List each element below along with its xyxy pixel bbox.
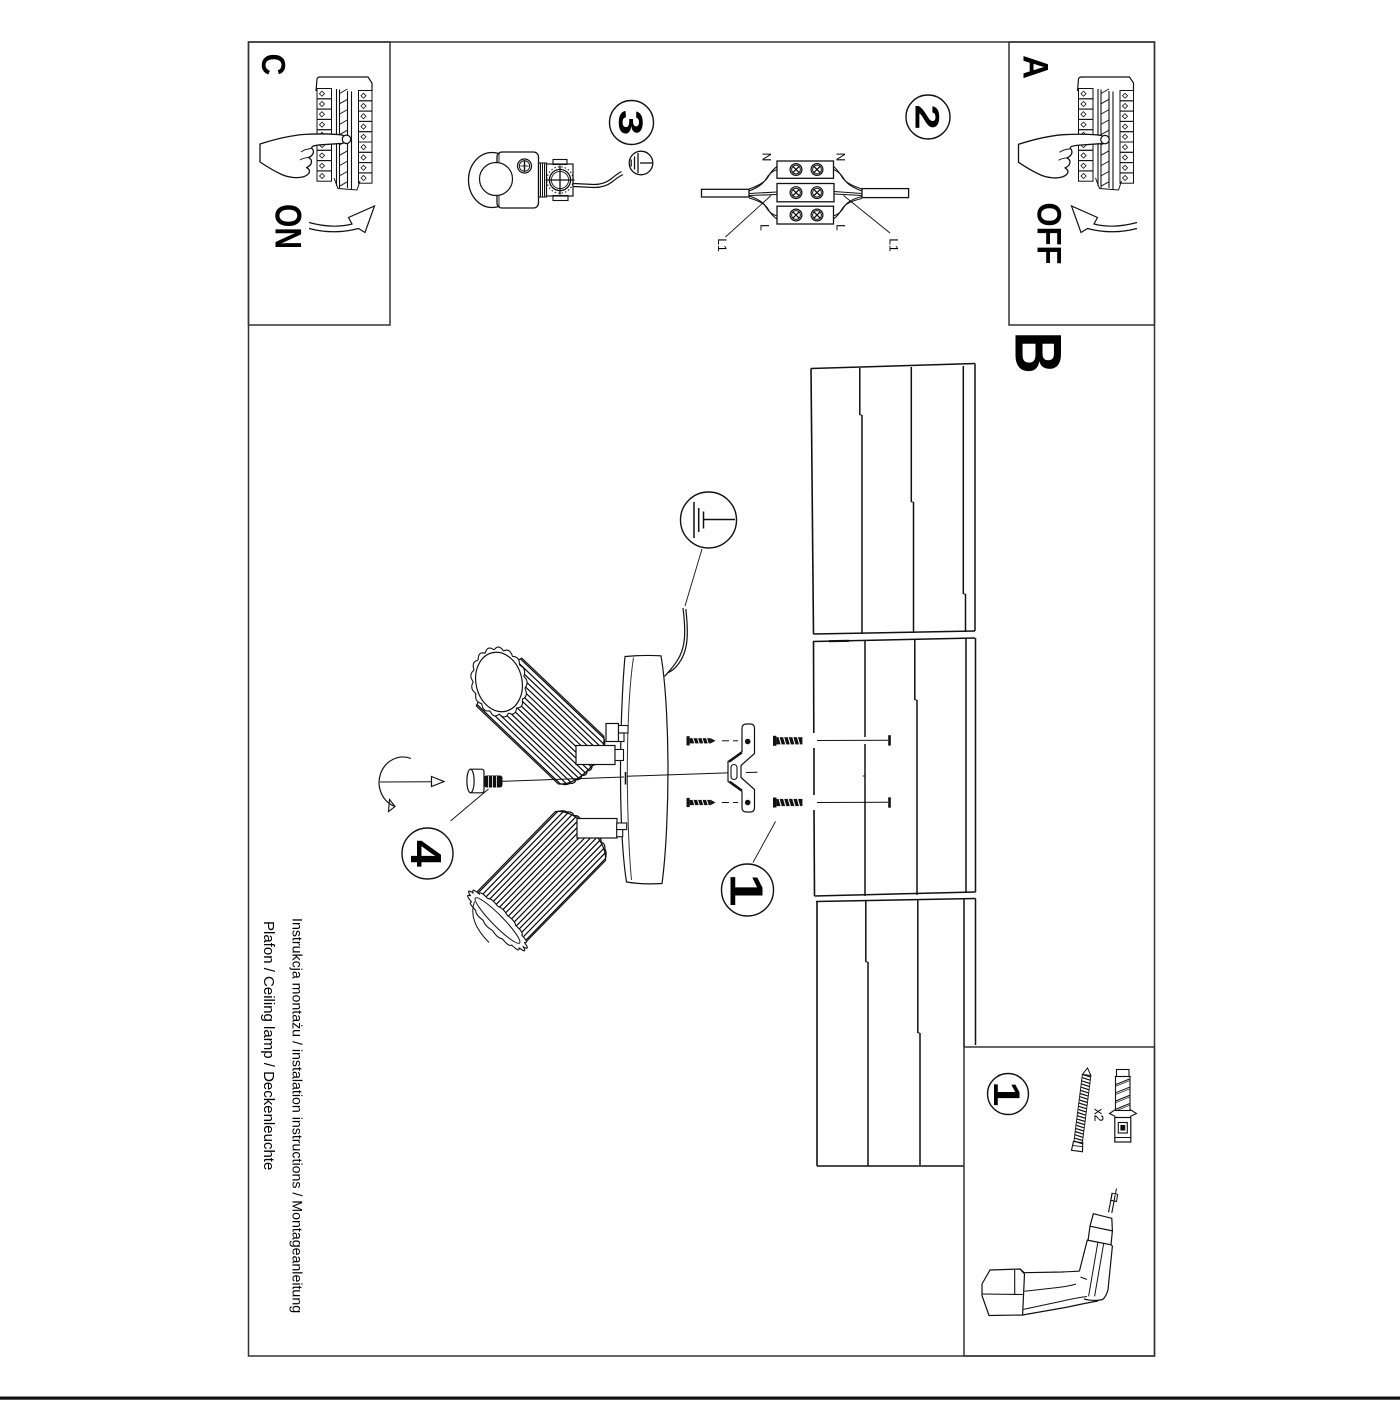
svg-text:A: A — [1015, 55, 1054, 79]
svg-text:L1: L1 — [715, 238, 729, 252]
svg-text:ON: ON — [267, 204, 309, 249]
svg-text:L: L — [834, 224, 848, 231]
svg-text:Instrukcja montażu / instalati: Instrukcja montażu / instalation instruc… — [289, 918, 305, 1313]
svg-text:Plafon / Ceiling lamp / Decken: Plafon / Ceiling lamp / Deckenleuchte — [260, 921, 277, 1170]
svg-text:1: 1 — [720, 873, 771, 906]
svg-text:N: N — [760, 153, 774, 162]
svg-text:N: N — [834, 153, 848, 162]
svg-text:B: B — [1001, 331, 1075, 374]
svg-text:4: 4 — [401, 840, 450, 867]
svg-text:OFF: OFF — [1030, 203, 1069, 265]
svg-text:3: 3 — [611, 110, 649, 135]
svg-text:1: 1 — [986, 1082, 1028, 1107]
svg-text:L1: L1 — [887, 238, 901, 252]
svg-text:C: C — [255, 54, 293, 76]
svg-text:2: 2 — [908, 104, 946, 129]
svg-text:x2: x2 — [1092, 1108, 1106, 1121]
svg-text:L: L — [758, 224, 772, 231]
